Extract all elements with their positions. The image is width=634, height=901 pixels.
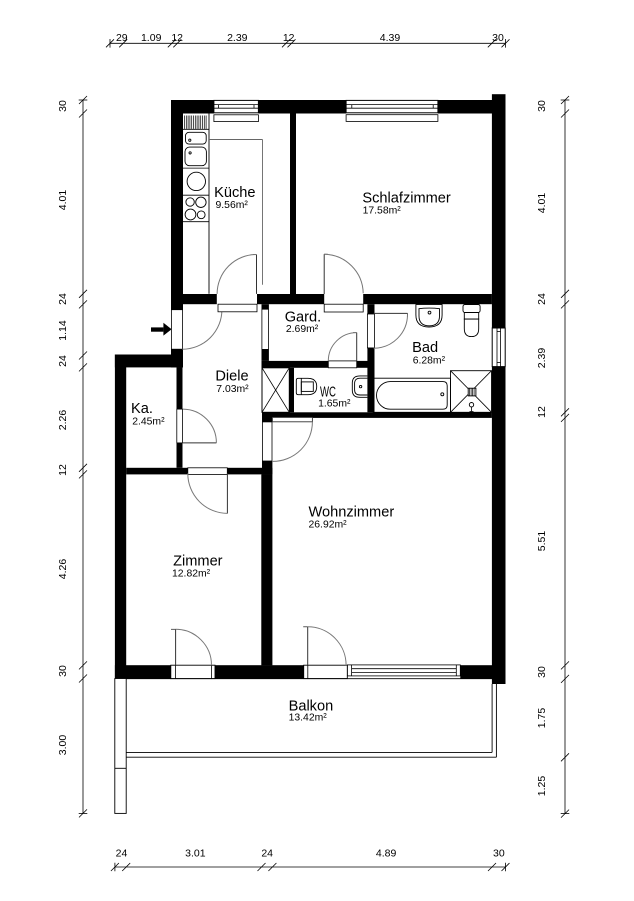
svg-text:12: 12	[171, 32, 183, 44]
svg-text:3.01: 3.01	[185, 847, 206, 859]
svg-text:30: 30	[536, 666, 548, 678]
svg-text:Ka.: Ka.	[131, 401, 153, 417]
svg-text:9.56m²: 9.56m²	[216, 200, 249, 211]
svg-text:1.14: 1.14	[57, 320, 69, 341]
svg-text:13.42m²: 13.42m²	[289, 713, 328, 724]
svg-text:5.51: 5.51	[536, 531, 548, 552]
svg-text:1.75: 1.75	[536, 708, 548, 729]
svg-text:2.39: 2.39	[536, 348, 548, 369]
svg-text:30: 30	[536, 100, 548, 112]
svg-text:2.39: 2.39	[227, 32, 248, 44]
svg-text:29: 29	[116, 32, 128, 44]
svg-text:24: 24	[57, 293, 69, 305]
svg-text:6.28m²: 6.28m²	[413, 355, 446, 366]
svg-text:24: 24	[536, 293, 548, 305]
svg-text:12: 12	[283, 32, 295, 44]
svg-text:Diele: Diele	[215, 369, 248, 385]
svg-text:7.03m²: 7.03m²	[216, 384, 249, 395]
svg-text:30: 30	[492, 32, 504, 44]
svg-text:4.26: 4.26	[57, 559, 69, 580]
svg-text:26.92m²: 26.92m²	[309, 520, 348, 531]
svg-text:2.26: 2.26	[57, 410, 69, 431]
svg-text:2.45m²: 2.45m²	[132, 417, 165, 428]
svg-text:Zimmer: Zimmer	[173, 553, 223, 569]
svg-text:4.01: 4.01	[536, 193, 548, 214]
svg-text:4.01: 4.01	[57, 190, 69, 211]
svg-text:1.25: 1.25	[536, 776, 548, 797]
svg-text:Küche: Küche	[214, 185, 255, 201]
svg-text:3.00: 3.00	[57, 735, 69, 756]
svg-text:24: 24	[57, 355, 69, 367]
svg-text:30: 30	[493, 847, 505, 859]
svg-text:17.58m²: 17.58m²	[363, 206, 402, 217]
svg-text:12: 12	[57, 464, 69, 476]
svg-text:12.82m²: 12.82m²	[172, 569, 211, 580]
svg-text:12: 12	[536, 406, 548, 418]
svg-text:1.09: 1.09	[141, 32, 162, 44]
svg-text:24: 24	[116, 847, 128, 859]
svg-text:30: 30	[57, 100, 69, 112]
svg-text:Wohnzimmer: Wohnzimmer	[309, 504, 395, 520]
svg-text:Schlafzimmer: Schlafzimmer	[362, 191, 451, 207]
svg-text:Bad: Bad	[412, 340, 438, 356]
svg-text:24: 24	[261, 847, 273, 859]
svg-text:2.69m²: 2.69m²	[286, 324, 319, 335]
svg-text:4.89: 4.89	[376, 847, 397, 859]
svg-text:1.65m²: 1.65m²	[318, 399, 351, 410]
svg-text:4.39: 4.39	[380, 32, 401, 44]
svg-text:30: 30	[57, 665, 69, 677]
